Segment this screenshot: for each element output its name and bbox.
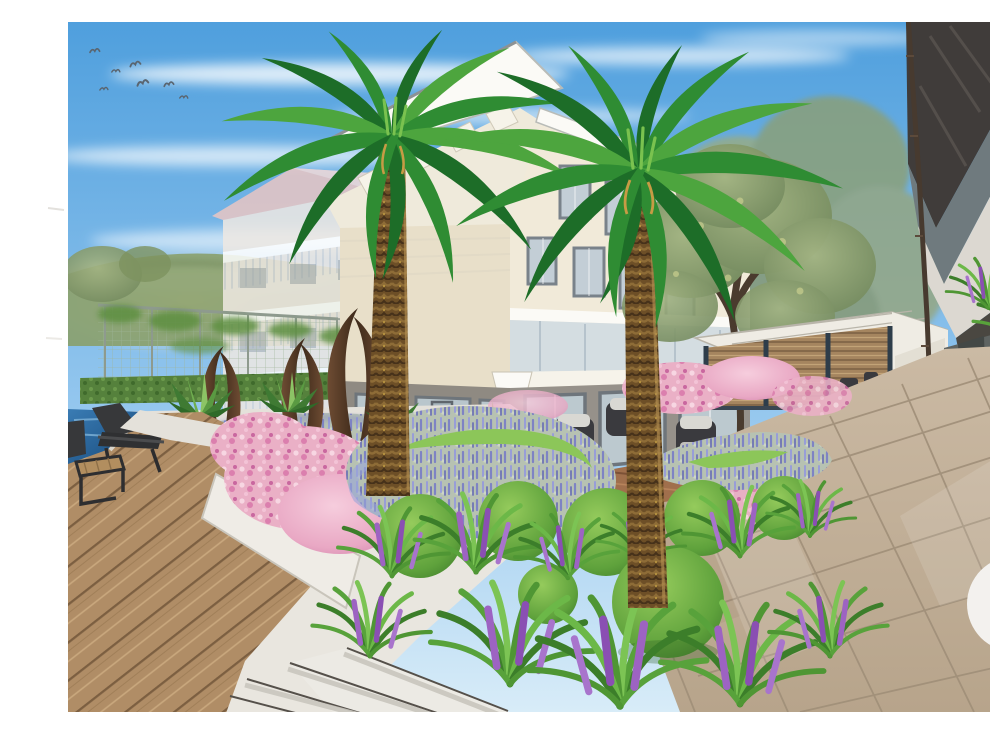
rendering-canvas [40,16,990,716]
rendering-image [40,16,990,716]
scene [40,16,990,716]
sun-lounger-2 [68,420,86,458]
pencil-mark [46,338,62,339]
